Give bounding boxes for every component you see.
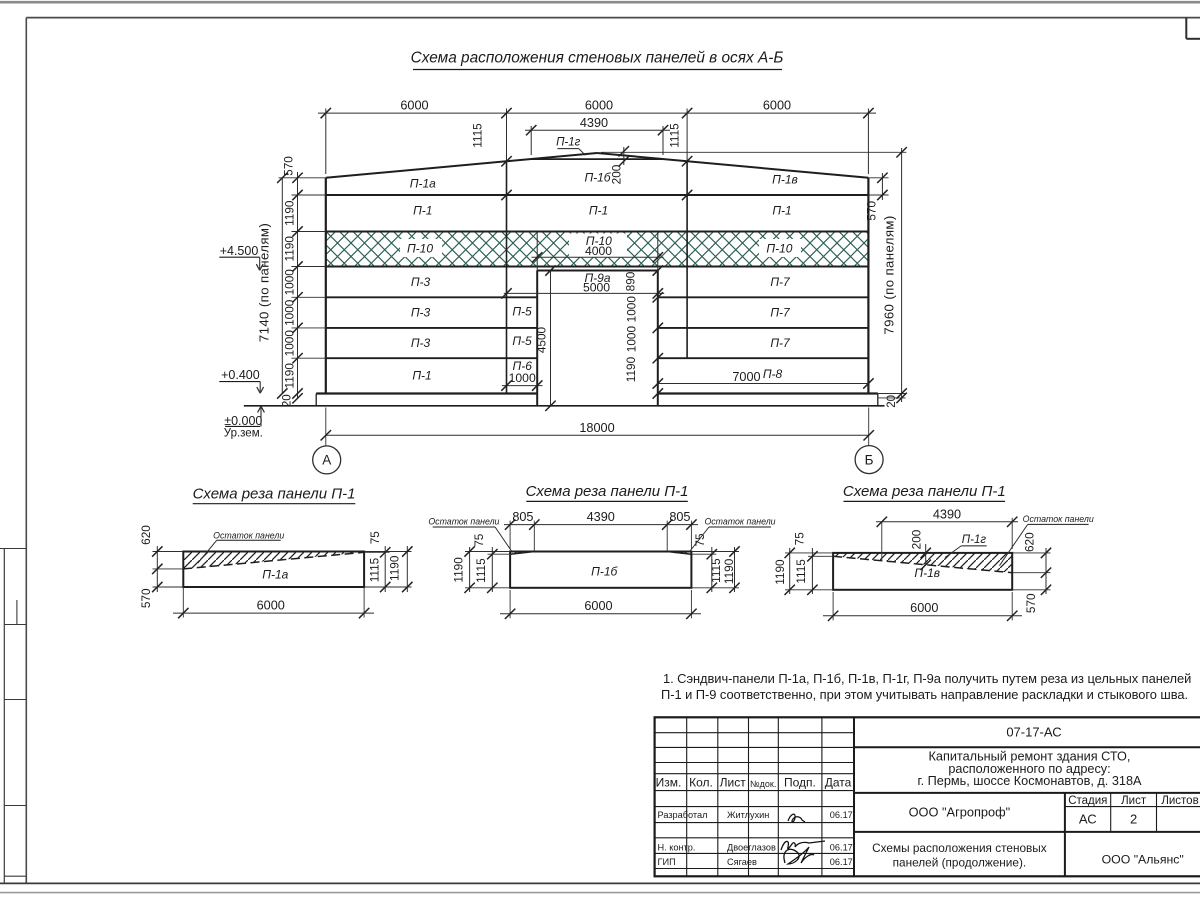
svg-text:1190: 1190	[773, 559, 787, 585]
svg-text:7960 (по панелям): 7960 (по панелям)	[881, 215, 896, 334]
svg-text:Кол.: Кол.	[689, 776, 713, 790]
svg-text:П-5: П-5	[512, 334, 532, 348]
svg-text:1000: 1000	[625, 326, 639, 353]
svg-text:1190: 1190	[722, 558, 736, 584]
svg-text:П-8: П-8	[763, 367, 783, 381]
svg-text:6000: 6000	[763, 98, 791, 112]
svg-text:1115: 1115	[794, 559, 808, 584]
svg-text:7140 (по панелям): 7140 (по панелям)	[257, 223, 272, 342]
svg-text:6000: 6000	[257, 598, 285, 612]
svg-text:Б: Б	[865, 452, 874, 467]
svg-text:200: 200	[610, 164, 624, 184]
svg-text:Остаток панели: Остаток панели	[428, 517, 499, 527]
svg-text:+4.500: +4.500	[220, 244, 259, 258]
svg-text:18000: 18000	[579, 421, 614, 435]
svg-text:ГИП: ГИП	[658, 857, 676, 867]
svg-text:1190: 1190	[388, 555, 402, 581]
svg-text:1000: 1000	[509, 371, 536, 385]
svg-text:20: 20	[282, 394, 294, 407]
svg-text:4000: 4000	[585, 244, 612, 258]
svg-text:П-3: П-3	[411, 336, 431, 350]
svg-text:АС: АС	[1079, 812, 1097, 827]
svg-text:2: 2	[1130, 812, 1137, 827]
svg-text:20: 20	[886, 395, 898, 408]
svg-text:Остаток панели: Остаток панели	[213, 530, 284, 540]
svg-text:Схема реза панели П-1: Схема реза панели П-1	[193, 485, 356, 502]
svg-text:4390: 4390	[587, 510, 615, 524]
svg-text:06.17: 06.17	[830, 842, 853, 852]
svg-text:1. Сэндвич-панели П-1а, П-1б,: 1. Сэндвич-панели П-1а, П-1б, П-1в, П-1г…	[663, 671, 1191, 686]
svg-text:П-1 и П-9 соответственно, при: П-1 и П-9 соответственно, при этом учиты…	[661, 687, 1188, 702]
svg-text:Разработал: Разработал	[658, 810, 708, 820]
svg-text:4500: 4500	[535, 326, 549, 353]
svg-text:1190: 1190	[283, 236, 297, 262]
svg-text:1115: 1115	[668, 123, 682, 148]
svg-text:панелей (продолжение).: панелей (продолжение).	[893, 856, 1027, 870]
svg-text:6000: 6000	[910, 601, 938, 615]
svg-text:ООО "Агропроф": ООО "Агропроф"	[909, 805, 1011, 820]
svg-text:1000: 1000	[283, 330, 297, 357]
svg-text:1190: 1190	[283, 200, 297, 226]
svg-text:7000: 7000	[732, 370, 760, 384]
svg-text:П-1а: П-1а	[262, 568, 288, 582]
svg-text:1000: 1000	[625, 296, 639, 323]
svg-text:П-1г: П-1г	[962, 534, 987, 546]
svg-text:5000: 5000	[583, 281, 610, 295]
svg-text:+0.400: +0.400	[221, 368, 260, 382]
svg-text:570: 570	[1024, 593, 1038, 613]
svg-text:Двоеглазов: Двоеглазов	[727, 842, 776, 852]
svg-text:75: 75	[472, 533, 486, 547]
svg-text:620: 620	[1022, 532, 1036, 552]
svg-text:06.17: 06.17	[830, 810, 853, 820]
svg-text:П-1: П-1	[589, 203, 608, 217]
svg-text:Схемы расположения стеновых: Схемы расположения стеновых	[872, 841, 1047, 855]
svg-text:ООО "Альянс": ООО "Альянс"	[1102, 852, 1184, 866]
svg-text:Лист: Лист	[1121, 795, 1147, 807]
svg-text:6000: 6000	[400, 98, 428, 112]
svg-text:П-10: П-10	[407, 242, 433, 256]
svg-text:75: 75	[693, 533, 707, 547]
svg-text:4390: 4390	[580, 116, 608, 130]
svg-text:Остаток панели: Остаток панели	[704, 517, 775, 527]
svg-text:Схема реза панели П-1: Схема реза панели П-1	[526, 483, 689, 500]
svg-text:±0.000: ±0.000	[224, 414, 262, 428]
svg-text:75: 75	[368, 531, 382, 545]
svg-text:07-17-АС: 07-17-АС	[1006, 725, 1061, 740]
svg-text:Лист: Лист	[720, 776, 747, 790]
svg-text:№док.: №док.	[750, 779, 776, 789]
svg-text:1115: 1115	[368, 557, 382, 582]
svg-text:75: 75	[792, 532, 806, 546]
svg-text:Изм.: Изм.	[656, 776, 682, 790]
svg-text:Ур.зем.: Ур.зем.	[224, 428, 263, 440]
svg-text:П-7: П-7	[770, 275, 791, 289]
svg-text:Листов: Листов	[1161, 795, 1198, 807]
svg-text:Сягаев: Сягаев	[727, 857, 757, 867]
svg-text:06.17: 06.17	[830, 857, 853, 867]
svg-text:890: 890	[624, 271, 638, 291]
svg-text:Житлухин: Житлухин	[727, 810, 769, 820]
svg-text:П-1: П-1	[412, 369, 431, 383]
svg-text:Дата: Дата	[825, 776, 852, 790]
svg-text:1115: 1115	[471, 123, 485, 148]
svg-text:1115: 1115	[474, 558, 488, 583]
svg-text:Н. контр.: Н. контр.	[658, 842, 696, 852]
svg-text:200: 200	[909, 529, 923, 549]
svg-text:1000: 1000	[283, 299, 297, 326]
svg-text:Остаток панели: Остаток панели	[1023, 514, 1094, 524]
svg-text:4390: 4390	[933, 507, 961, 521]
svg-text:570: 570	[864, 201, 878, 221]
svg-text:1000: 1000	[283, 269, 297, 296]
svg-text:Схема реза панели П-1: Схема реза панели П-1	[843, 483, 1006, 500]
svg-text:А: А	[322, 453, 331, 468]
svg-text:П-1б: П-1б	[584, 170, 611, 184]
svg-text:620: 620	[139, 525, 153, 545]
svg-text:П-1: П-1	[772, 203, 791, 217]
svg-text:805: 805	[669, 510, 690, 524]
svg-text:1115: 1115	[709, 558, 723, 583]
svg-text:570: 570	[139, 588, 153, 608]
svg-text:1190: 1190	[624, 356, 638, 382]
svg-text:П-1в: П-1в	[914, 566, 940, 580]
svg-text:П-1г: П-1г	[556, 137, 581, 149]
svg-text:П-7: П-7	[770, 306, 791, 320]
svg-text:г. Пермь, шоссе Космонавтов, д: г. Пермь, шоссе Космонавтов, д. 318А	[918, 774, 1142, 788]
svg-text:П-1: П-1	[413, 203, 432, 217]
svg-text:П-1а: П-1а	[410, 176, 436, 190]
svg-text:805: 805	[512, 510, 533, 524]
svg-text:П-5: П-5	[512, 305, 532, 319]
svg-text:П-7: П-7	[770, 336, 791, 350]
svg-text:П-1б: П-1б	[591, 565, 618, 579]
svg-text:П-3: П-3	[411, 306, 431, 320]
svg-text:П-10: П-10	[766, 242, 792, 256]
svg-text:570: 570	[282, 156, 296, 176]
svg-text:6000: 6000	[585, 98, 613, 112]
svg-text:6000: 6000	[584, 599, 612, 613]
svg-text:П-1в: П-1в	[772, 172, 798, 186]
svg-text:1190: 1190	[452, 557, 466, 583]
svg-text:Подп.: Подп.	[784, 776, 816, 790]
svg-text:Схема расположения стеновых па: Схема расположения стеновых панелей в ос…	[411, 50, 784, 67]
svg-text:1190: 1190	[283, 363, 297, 389]
svg-text:П-3: П-3	[411, 275, 431, 289]
svg-text:Стадия: Стадия	[1068, 795, 1107, 807]
